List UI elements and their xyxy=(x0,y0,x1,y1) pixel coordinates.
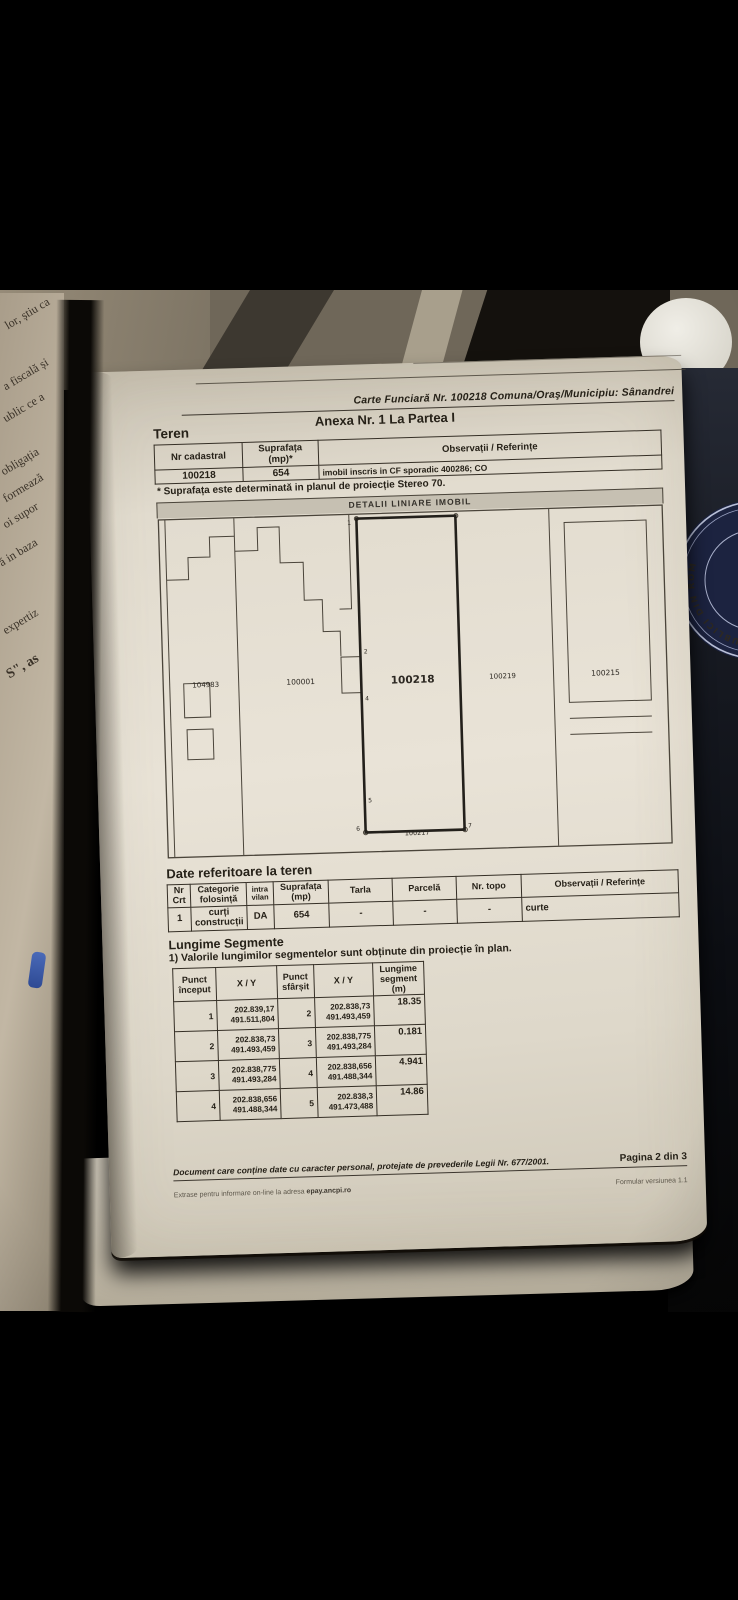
teren-section-title: Teren xyxy=(153,426,189,442)
date-teren-title: Date referitoare la teren xyxy=(166,862,312,881)
segment-row: 4 202.838,656491.488,344 5 202.838,3491.… xyxy=(176,1085,428,1122)
col-header: Lungime segment (m) xyxy=(373,961,425,996)
plan-point-label: 7 xyxy=(468,822,472,829)
cell-punct-inceput: 4 xyxy=(176,1091,220,1122)
col-header: Parcelă xyxy=(392,876,457,901)
parcel-label-bottom: 100217 xyxy=(405,829,430,838)
cell-xy-end: 202.838,3491.473,488 xyxy=(317,1086,377,1118)
page-gutter-shadow xyxy=(48,300,105,1312)
plan-point-label: 5 xyxy=(368,797,372,804)
nr-cadastral-value: 100218 xyxy=(155,467,243,484)
cell-nr-topo: - xyxy=(457,897,523,923)
plan-point-label: 1 xyxy=(347,520,351,527)
segments-table: Punct început X / Y Punct sfârșit X / Y … xyxy=(172,961,428,1123)
col-header: Punct sfârșit xyxy=(277,965,315,999)
coord-y: 491.473,488 xyxy=(321,1101,373,1112)
extras-link: epay.ancpi.ro xyxy=(306,1187,351,1195)
cell-lungime: 14.86 xyxy=(376,1085,428,1117)
parcel-label: 100219 xyxy=(489,672,516,681)
cell-suprafata: 654 xyxy=(274,903,330,928)
coord-y: 491.488,344 xyxy=(320,1071,372,1082)
cell-punct-sfarsit: 4 xyxy=(279,1058,317,1089)
cell-xy-start: 202.838,656491.488,344 xyxy=(219,1089,281,1121)
left-page-text-fragment: S", as xyxy=(4,651,42,683)
coord-y: 491.493,459 xyxy=(318,1011,370,1022)
col-header: X / Y xyxy=(215,966,277,1001)
plan-point-label: 2 xyxy=(364,648,368,655)
left-page-text-fragment: ublic ce a xyxy=(0,389,47,426)
cell-xy-start: 202.838,775491.493,284 xyxy=(218,1059,280,1091)
nr-cadastral-header: Nr cadastral xyxy=(154,442,243,470)
plan-drawing: 104983 100001 100218 100219 100215 10021… xyxy=(157,504,674,860)
cell-punct-sfarsit: 5 xyxy=(280,1088,318,1119)
document-page: Carte Funciară Nr. 100218 Comuna/Oraş/Mu… xyxy=(85,355,707,1258)
cell-nr-crt: 1 xyxy=(168,907,192,932)
left-page-text-fragment: ă in baza xyxy=(0,535,40,570)
col-header: Nr. topo xyxy=(456,874,522,899)
coord-y: 491.493,284 xyxy=(222,1074,276,1085)
extras-prefix: Extrase pentru informare on-line la adre… xyxy=(174,1188,307,1199)
cell-observatii: curte xyxy=(522,893,680,922)
top-rule xyxy=(196,369,686,385)
cadastral-plan: DETALII LINIARE IMOBIL xyxy=(156,488,673,860)
cell-xy-end: 202.838,775491.493,284 xyxy=(315,1026,375,1058)
photo-stage: lor, știu ca a fiscală și ublic ce a obl… xyxy=(0,0,738,1600)
parcel-label: 100215 xyxy=(591,668,620,678)
cell-punct-inceput: 2 xyxy=(175,1031,219,1062)
col-header: Punct început xyxy=(173,968,217,1002)
coord-y: 491.488,344 xyxy=(223,1104,277,1115)
cell-intravilan: DA xyxy=(247,905,275,930)
left-page-text-fragment: a fiscală și xyxy=(0,355,51,394)
col-header: Categorie folosință xyxy=(190,883,247,907)
cell-lungime: 18.35 xyxy=(373,995,425,1027)
form-version: Formular versiunea 1.1 xyxy=(616,1177,688,1186)
suprafata-value: 654 xyxy=(243,465,319,481)
footer-row-2: Extrase pentru informare on-line la adre… xyxy=(174,1177,688,1199)
notary-seal: PUBLICI DIN ROM xyxy=(684,492,738,668)
cell-parcela: - xyxy=(393,899,458,925)
left-page-text-fragment: expertiz xyxy=(0,605,41,638)
cell-punct-inceput: 1 xyxy=(174,1001,218,1032)
col-header: intra vilan xyxy=(246,882,274,906)
cell-xy-start: 202.838,73491.493,459 xyxy=(217,1029,279,1061)
cell-categorie: curți construcții xyxy=(191,905,248,931)
cell-punct-sfarsit: 3 xyxy=(279,1028,317,1059)
coord-y: 491.493,459 xyxy=(221,1044,275,1055)
cell-punct-sfarsit: 2 xyxy=(278,998,316,1029)
teren-table: Nr cadastral Suprafața (mp)* Observații … xyxy=(154,430,663,485)
cell-tarla: - xyxy=(329,901,394,927)
coord-y: 491.511,804 xyxy=(220,1014,274,1025)
page-number: Pagina 2 din 3 xyxy=(620,1151,688,1164)
footer-row: Document care conține date cu caracter p… xyxy=(173,1151,687,1181)
left-page-text-fragment: lor, știu ca xyxy=(2,294,52,333)
privacy-notice: Document care conține date cu caracter p… xyxy=(173,1154,610,1177)
extras-note: Extrase pentru informare on-line la adre… xyxy=(174,1179,616,1199)
plan-point-label: 6 xyxy=(356,826,360,833)
parcel-label: 100001 xyxy=(286,677,315,687)
plan-point-label: 4 xyxy=(365,695,369,702)
suprafata-header: Suprafața (mp)* xyxy=(242,440,319,467)
col-header: Nr Crt xyxy=(167,884,191,907)
parcel-label: 104983 xyxy=(192,681,219,690)
cell-punct-inceput: 3 xyxy=(175,1061,219,1092)
parcel-label-main: 100218 xyxy=(391,673,435,686)
coord-y: 491.493,284 xyxy=(319,1041,371,1052)
cell-lungime: 0.181 xyxy=(374,1025,426,1057)
col-header: X / Y xyxy=(313,963,373,998)
cell-xy-end: 202.838,73491.493,459 xyxy=(314,996,374,1028)
cell-lungime: 4.941 xyxy=(375,1055,427,1087)
col-header: Tarla xyxy=(328,878,393,903)
cell-xy-start: 202.839,17491.511,804 xyxy=(216,999,278,1031)
col-header: Suprafața (mp) xyxy=(273,880,329,904)
cell-xy-end: 202.838,656491.488,344 xyxy=(316,1056,376,1088)
